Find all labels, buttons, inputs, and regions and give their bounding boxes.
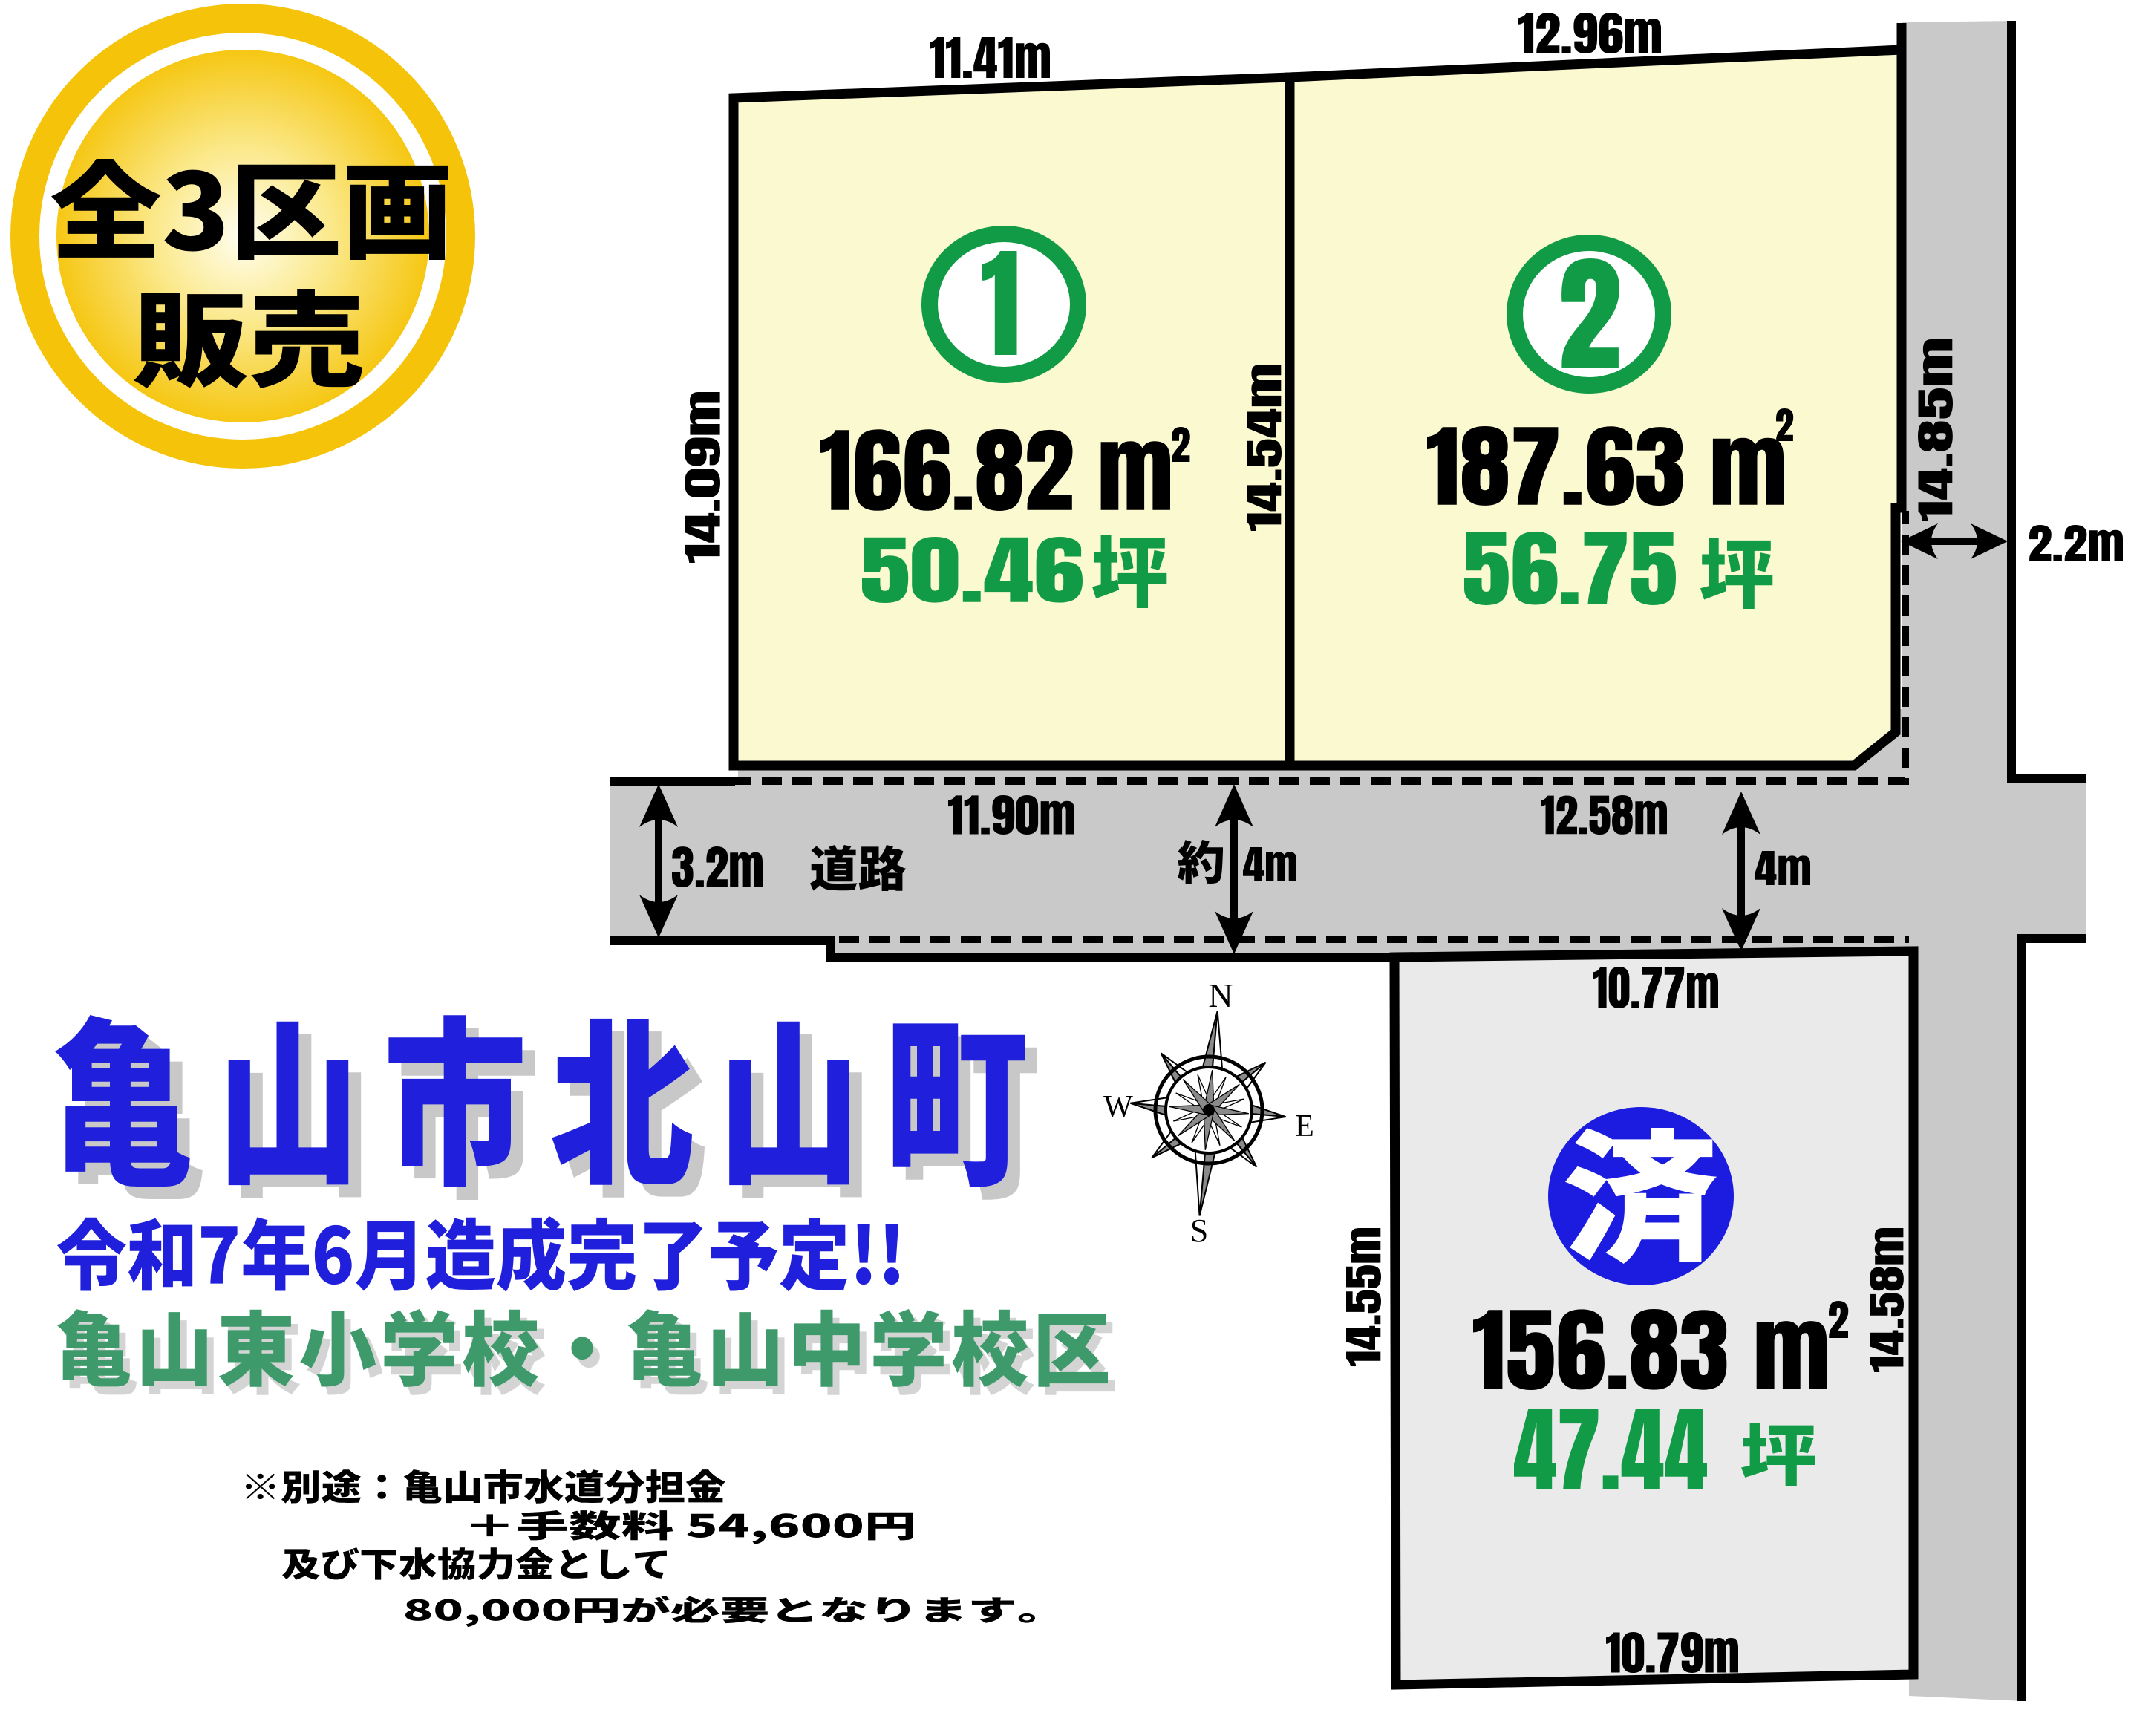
svg-text:N: N (1208, 976, 1233, 1014)
svg-text:W: W (1103, 1090, 1133, 1124)
svg-text:E: E (1295, 1109, 1314, 1143)
svg-text:S: S (1190, 1213, 1208, 1249)
